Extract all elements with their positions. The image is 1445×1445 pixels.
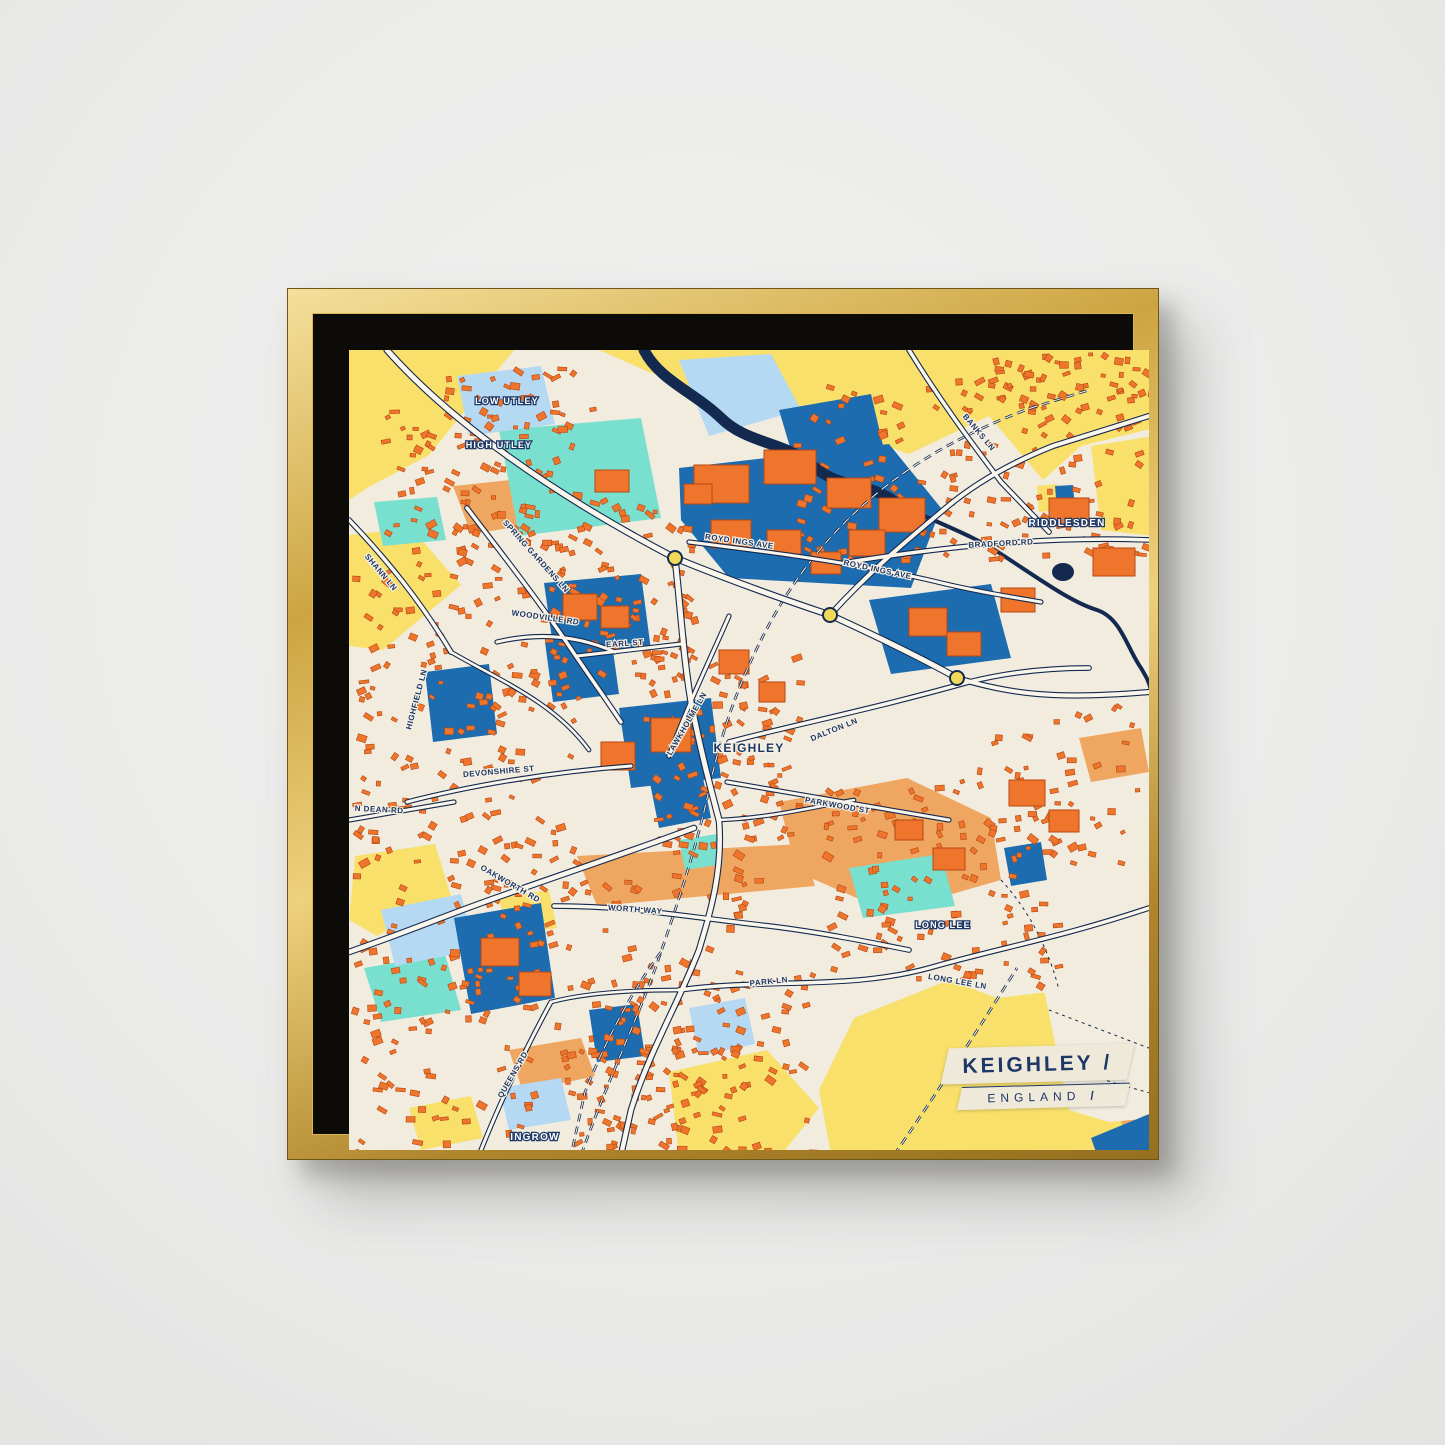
house	[553, 840, 558, 846]
place-label: KEIGHLEY	[714, 741, 785, 755]
house	[475, 981, 480, 987]
house	[664, 691, 670, 698]
slash-mark: /	[1090, 1088, 1099, 1102]
house	[713, 1126, 723, 1134]
house	[443, 1141, 450, 1148]
frame-float-gap: BANKS LNBRADFORD RDROYD INGS AVEROYD ING…	[312, 313, 1134, 1135]
house	[883, 890, 889, 896]
title-card-main-row: KEIGHLEY/	[940, 1043, 1134, 1084]
house	[552, 401, 559, 408]
house	[1135, 788, 1140, 792]
house	[996, 370, 1005, 374]
house	[677, 1146, 687, 1150]
house	[507, 977, 513, 980]
house	[631, 1128, 636, 1135]
house	[383, 957, 389, 964]
house	[960, 833, 966, 840]
house	[658, 665, 665, 670]
factory	[481, 938, 519, 966]
house	[396, 1088, 406, 1092]
house	[426, 1029, 432, 1034]
house	[366, 744, 375, 750]
house	[394, 524, 400, 528]
house	[621, 1017, 626, 1022]
house	[589, 1035, 594, 1042]
house	[486, 968, 492, 972]
house	[548, 680, 556, 686]
house	[501, 467, 506, 473]
house	[1127, 397, 1134, 403]
house	[987, 522, 992, 526]
house	[1043, 849, 1053, 854]
house	[847, 522, 857, 530]
house	[1024, 766, 1029, 770]
house	[505, 1045, 510, 1050]
factory	[759, 682, 785, 702]
house	[519, 434, 528, 439]
factory	[895, 820, 923, 840]
house	[653, 510, 657, 514]
house	[510, 382, 520, 390]
house	[969, 511, 974, 517]
house	[1036, 494, 1042, 500]
house	[558, 367, 567, 371]
house	[727, 925, 735, 932]
house	[665, 965, 671, 972]
house	[364, 749, 371, 754]
house	[532, 374, 540, 380]
roundabout	[823, 608, 837, 622]
house	[832, 812, 839, 816]
place-label: LONG LEE	[915, 920, 971, 930]
house	[656, 1087, 665, 1092]
house	[1083, 383, 1088, 388]
house	[672, 873, 682, 879]
slash-mark: /	[1103, 1051, 1112, 1075]
house	[723, 1023, 730, 1027]
house	[395, 1007, 402, 1014]
house	[411, 518, 417, 522]
house	[838, 404, 844, 408]
house	[390, 410, 400, 414]
house	[633, 608, 639, 612]
house	[1055, 801, 1061, 805]
map-canvas: BANKS LNBRADFORD RDROYD INGS AVEROYD ING…	[349, 350, 1149, 1150]
house	[483, 583, 493, 589]
house	[794, 443, 802, 447]
house	[683, 525, 692, 532]
house	[1015, 815, 1021, 821]
factory	[1093, 548, 1135, 576]
house	[462, 981, 470, 987]
house	[607, 1144, 614, 1150]
house	[698, 1052, 708, 1055]
house	[878, 456, 886, 463]
house	[406, 1117, 415, 1123]
house	[671, 1123, 678, 1131]
house	[653, 635, 659, 642]
house	[485, 798, 492, 803]
house	[908, 897, 912, 901]
house	[1089, 499, 1094, 503]
house	[995, 735, 1002, 741]
house	[673, 1048, 678, 1054]
factory	[849, 530, 885, 556]
house	[787, 832, 794, 836]
house	[410, 453, 416, 457]
house	[461, 491, 469, 496]
map-title-card: KEIGHLEY/ ENGLAND/	[944, 1044, 1132, 1111]
house	[1043, 553, 1050, 559]
house	[561, 569, 566, 574]
house	[723, 893, 729, 900]
house	[524, 422, 530, 429]
poster-frame: BANKS LNBRADFORD RDROYD INGS AVEROYD ING…	[287, 288, 1159, 1160]
house	[512, 672, 522, 678]
map-svg: BANKS LNBRADFORD RDROYD INGS AVEROYD ING…	[349, 350, 1149, 1150]
house	[478, 968, 483, 972]
house	[364, 1019, 370, 1024]
house	[543, 540, 552, 546]
house	[388, 644, 395, 648]
house	[1039, 902, 1048, 906]
house	[616, 1039, 625, 1045]
house	[391, 967, 400, 974]
house	[764, 1148, 771, 1150]
house	[376, 781, 380, 786]
factory	[519, 972, 551, 996]
house	[739, 702, 748, 710]
house	[592, 1001, 601, 1008]
house	[1022, 428, 1028, 434]
house	[466, 614, 472, 619]
house	[988, 383, 995, 388]
house	[549, 586, 555, 592]
house	[754, 1056, 763, 1062]
house	[778, 774, 782, 778]
house	[956, 450, 962, 456]
house	[1047, 489, 1052, 494]
house	[621, 515, 629, 522]
house	[749, 755, 755, 760]
house	[407, 958, 412, 963]
factory	[879, 498, 925, 532]
house	[1073, 454, 1082, 461]
house	[525, 1104, 532, 1111]
factory	[764, 450, 816, 484]
house	[632, 660, 637, 665]
house	[406, 607, 415, 614]
factory	[595, 470, 629, 492]
house	[412, 547, 421, 554]
house	[646, 1075, 653, 1079]
house	[398, 491, 406, 498]
house	[463, 758, 472, 766]
house	[373, 1013, 382, 1019]
house	[504, 843, 510, 849]
house	[1069, 462, 1076, 467]
house	[757, 1041, 764, 1047]
house	[699, 842, 708, 850]
house	[1065, 769, 1075, 776]
house	[950, 485, 958, 491]
house	[710, 726, 715, 733]
place-label: HIGH UTLEY	[466, 440, 533, 450]
house	[511, 1093, 516, 1099]
house	[663, 636, 669, 640]
house	[643, 717, 649, 722]
house	[368, 1005, 377, 1012]
house	[445, 1010, 450, 1014]
house	[585, 890, 591, 896]
house	[450, 858, 458, 863]
house	[940, 529, 947, 534]
house	[369, 948, 378, 956]
house	[655, 657, 665, 661]
house	[950, 450, 955, 457]
house	[1019, 403, 1025, 409]
house	[783, 1063, 790, 1070]
house	[475, 989, 481, 996]
house	[531, 669, 537, 673]
house	[804, 1118, 810, 1124]
house	[1040, 958, 1048, 963]
house	[917, 934, 924, 940]
factory	[947, 632, 981, 656]
house	[1004, 961, 1009, 965]
house	[935, 785, 945, 791]
house	[409, 487, 414, 494]
house	[625, 880, 632, 884]
house	[666, 1138, 671, 1144]
house	[713, 702, 723, 709]
house	[723, 1074, 727, 1078]
house	[495, 577, 502, 580]
house	[1002, 894, 1008, 897]
house	[421, 662, 427, 668]
house	[1116, 766, 1125, 772]
house	[1032, 907, 1038, 912]
house	[1137, 553, 1146, 557]
house	[673, 1026, 682, 1034]
house	[466, 726, 474, 731]
house	[993, 358, 1000, 366]
map-subtitle: ENGLAND	[987, 1089, 1080, 1105]
house	[673, 850, 680, 855]
house	[1101, 374, 1106, 378]
house	[652, 651, 661, 655]
house	[491, 496, 496, 500]
house	[782, 1039, 790, 1047]
house	[604, 1034, 614, 1041]
house	[440, 1117, 448, 1121]
house	[458, 607, 466, 614]
house	[1119, 372, 1123, 377]
house	[999, 818, 1007, 823]
map-title: KEIGHLEY	[962, 1052, 1094, 1079]
factory	[719, 650, 749, 674]
house	[1054, 719, 1060, 724]
house	[535, 510, 540, 517]
house	[455, 433, 462, 438]
house	[782, 1010, 789, 1015]
factory	[1009, 780, 1045, 806]
house	[462, 1119, 470, 1124]
house	[1129, 722, 1134, 728]
house	[400, 978, 407, 984]
house	[359, 696, 365, 702]
house	[514, 906, 520, 911]
factory	[601, 606, 629, 628]
house	[878, 853, 882, 858]
house	[1024, 371, 1034, 378]
house	[568, 985, 574, 990]
house	[432, 590, 441, 597]
house	[377, 711, 382, 715]
house	[1009, 873, 1017, 879]
factory	[909, 608, 947, 636]
house	[563, 882, 569, 889]
roundabout	[668, 551, 682, 565]
house	[917, 976, 922, 981]
house	[1005, 360, 1012, 367]
house	[557, 692, 562, 696]
house	[764, 763, 770, 767]
house	[558, 426, 568, 433]
house	[353, 874, 361, 879]
house	[1133, 367, 1140, 371]
house	[462, 386, 472, 391]
house	[461, 500, 467, 504]
house	[686, 1026, 694, 1032]
house	[873, 948, 882, 953]
house	[1060, 362, 1069, 369]
house	[438, 681, 443, 685]
house	[446, 376, 452, 382]
house	[425, 573, 432, 577]
house	[466, 1016, 472, 1023]
house	[1067, 758, 1076, 763]
place-label: RIDDLESDEN	[1028, 518, 1105, 529]
house	[977, 768, 982, 775]
house	[735, 912, 743, 919]
house	[1030, 387, 1036, 392]
house	[551, 541, 559, 545]
house	[641, 1095, 646, 1100]
house	[1024, 924, 1033, 931]
house	[872, 866, 879, 872]
house	[635, 673, 641, 677]
house	[533, 854, 542, 858]
house	[519, 696, 527, 703]
house	[848, 826, 858, 831]
house	[467, 703, 475, 708]
roundabout	[950, 671, 964, 685]
house	[1074, 362, 1081, 369]
house	[444, 395, 449, 401]
house	[565, 1078, 570, 1085]
house	[937, 823, 943, 830]
house	[590, 407, 597, 412]
house	[691, 616, 699, 624]
house	[951, 911, 961, 917]
region-blue	[1004, 842, 1047, 886]
house	[567, 1051, 577, 1058]
house	[980, 863, 986, 870]
house	[444, 728, 453, 735]
house	[1001, 497, 1011, 501]
place-label: INGROW	[510, 1132, 559, 1143]
house	[1017, 853, 1022, 858]
house	[867, 909, 874, 917]
house	[410, 763, 418, 770]
house	[689, 547, 694, 553]
house	[755, 878, 764, 883]
house	[1015, 772, 1021, 779]
house	[445, 388, 454, 395]
house	[508, 760, 514, 764]
house	[725, 675, 730, 679]
house	[797, 680, 805, 685]
house	[1053, 923, 1063, 928]
house	[1090, 817, 1095, 821]
house	[607, 567, 614, 573]
house	[603, 929, 608, 933]
house	[955, 378, 962, 385]
factory	[1049, 810, 1079, 832]
house	[422, 467, 428, 471]
house	[966, 456, 972, 461]
house	[975, 969, 983, 974]
house	[413, 427, 419, 430]
house	[1089, 353, 1093, 356]
house	[407, 435, 412, 440]
house	[450, 949, 460, 957]
house	[881, 882, 888, 888]
house	[368, 830, 378, 835]
house	[513, 426, 517, 429]
house	[551, 830, 556, 835]
house	[352, 576, 360, 582]
house	[418, 1106, 426, 1112]
house	[824, 823, 829, 830]
house	[579, 1133, 584, 1137]
house	[1014, 826, 1020, 832]
house	[550, 410, 560, 415]
house	[1114, 357, 1124, 365]
house	[1108, 808, 1116, 815]
house	[516, 749, 525, 755]
place-label: LOW UTLEY	[475, 396, 539, 406]
house	[372, 836, 378, 842]
title-card-sub-row: ENGLAND/	[957, 1083, 1130, 1111]
house	[989, 557, 999, 562]
house	[435, 665, 442, 670]
house	[679, 842, 689, 849]
house	[1125, 357, 1130, 364]
factory	[933, 848, 965, 870]
house	[409, 1027, 417, 1031]
house	[739, 1147, 747, 1150]
pond	[1052, 563, 1074, 581]
house	[742, 823, 749, 830]
house	[497, 512, 505, 519]
house	[414, 860, 421, 864]
house	[426, 1073, 436, 1079]
house	[555, 1023, 562, 1030]
house	[1026, 846, 1030, 849]
factory	[684, 484, 712, 504]
